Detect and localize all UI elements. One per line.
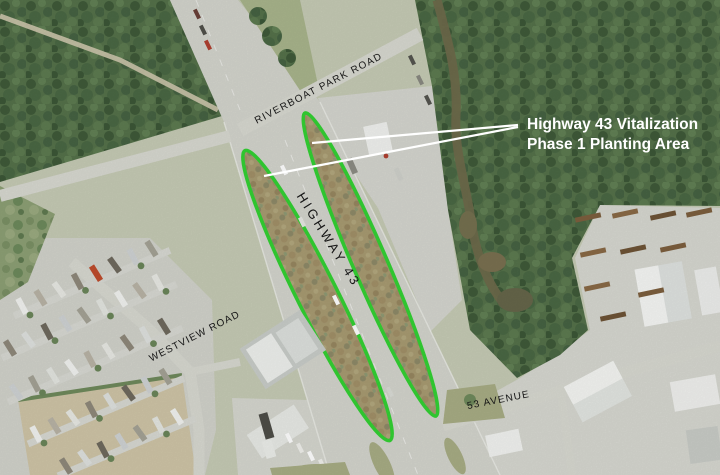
annotation-line-1: Highway 43 Vitalization [527, 116, 698, 133]
annotation-line-2: Phase 1 Planting Area [527, 136, 690, 153]
aerial-map: Highway 43 Vitalization Phase 1 Planting… [0, 0, 720, 475]
